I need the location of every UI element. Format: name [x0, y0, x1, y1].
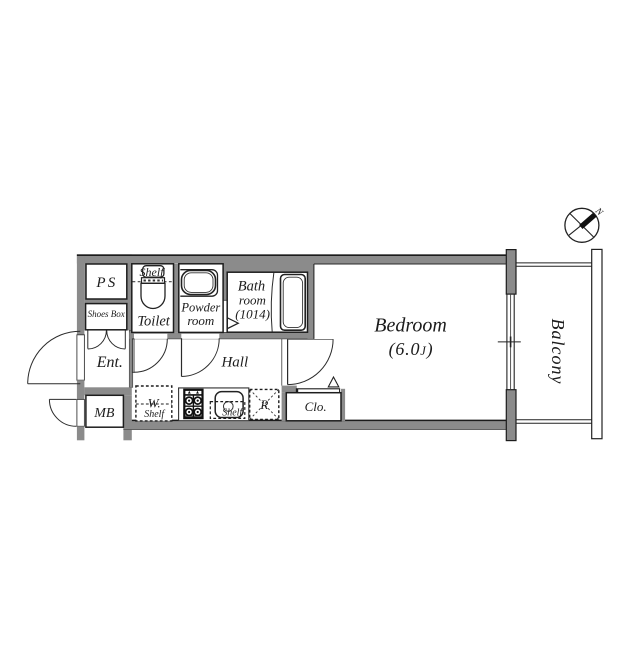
svg-text:room: room [187, 313, 214, 328]
svg-text:MB: MB [93, 406, 115, 421]
svg-text:(1014): (1014) [235, 307, 270, 322]
svg-text:Shelf: Shelf [222, 407, 243, 418]
svg-text:Toilet: Toilet [137, 314, 170, 330]
svg-text:Shoes Box: Shoes Box [88, 309, 125, 319]
svg-text:Shelf: Shelf [140, 265, 166, 279]
svg-text:Ent.: Ent. [96, 354, 123, 371]
svg-text:R: R [259, 397, 268, 412]
svg-text:Bedroom: Bedroom [374, 314, 447, 336]
svg-text:Clo.: Clo. [305, 399, 327, 414]
svg-text:Balcony: Balcony [548, 319, 568, 385]
svg-text:(6.0J): (6.0J) [389, 339, 434, 360]
svg-text:Hall: Hall [220, 354, 248, 370]
svg-text:PS: PS [95, 275, 117, 291]
svg-text:Shelf: Shelf [144, 409, 165, 420]
svg-text:room: room [239, 293, 266, 308]
